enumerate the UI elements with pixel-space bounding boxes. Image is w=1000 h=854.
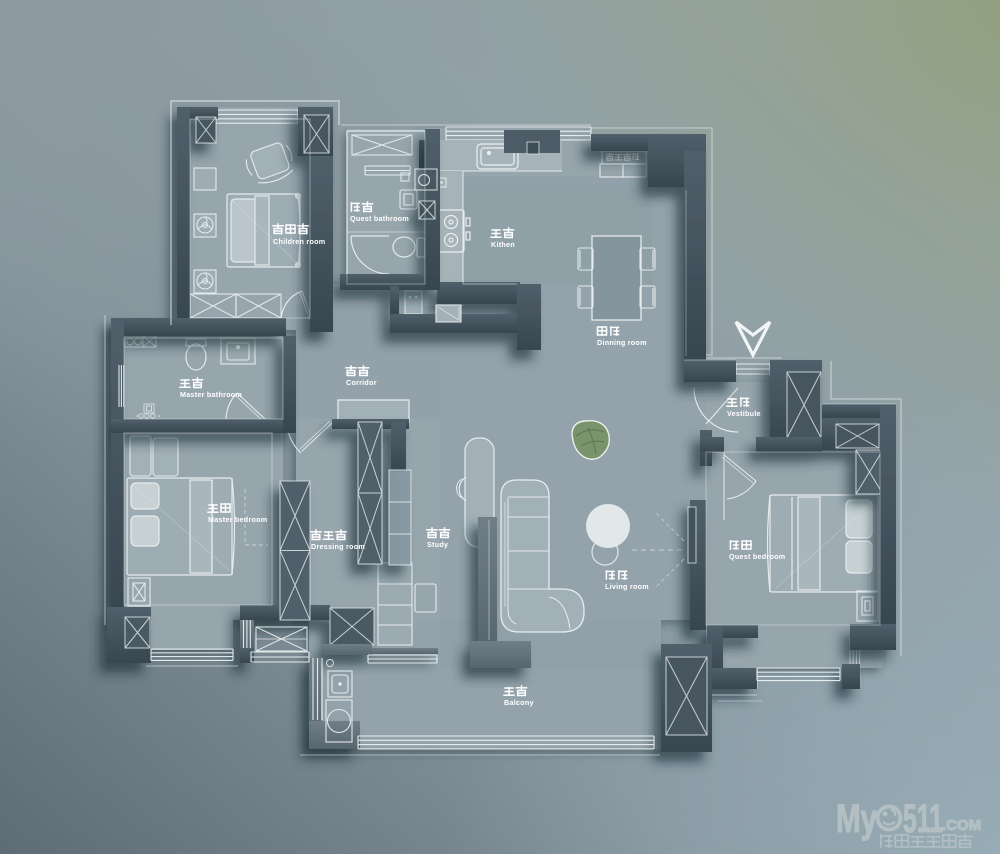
svg-text:Quest bathroom: Quest bathroom xyxy=(350,214,409,223)
svg-text:Children room: Children room xyxy=(273,237,325,246)
svg-text:Quest bedroom: Quest bedroom xyxy=(729,552,785,561)
svg-text:Study: Study xyxy=(427,540,448,549)
svg-text:Master bedroom: Master bedroom xyxy=(208,515,267,524)
svg-text:Kithen: Kithen xyxy=(491,240,515,249)
svg-text:My: My xyxy=(836,797,878,841)
svg-text:Living room: Living room xyxy=(605,582,649,591)
svg-text:Master bathroom: Master bathroom xyxy=(180,390,242,399)
svg-text:Balcony: Balcony xyxy=(504,698,534,707)
svg-text:Vestibule: Vestibule xyxy=(727,409,761,418)
svg-text:Corridor: Corridor xyxy=(346,378,377,387)
svg-text:.COM: .COM xyxy=(942,817,981,834)
svg-text:Dinning room: Dinning room xyxy=(597,338,647,347)
svg-text:Dressing room: Dressing room xyxy=(311,542,365,551)
